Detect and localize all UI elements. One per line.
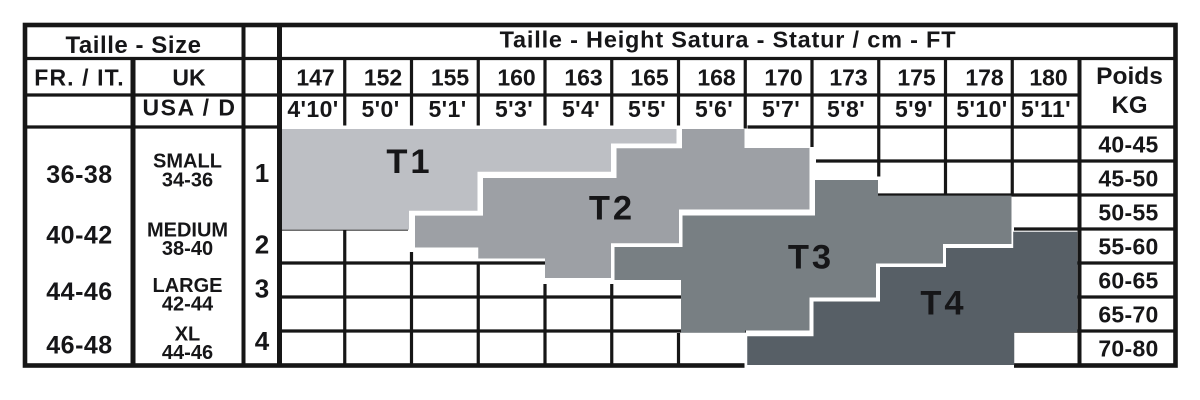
svg-text:42-44: 42-44	[162, 294, 214, 316]
svg-text:5'0': 5'0'	[361, 96, 399, 122]
svg-text:5'6': 5'6'	[695, 96, 733, 122]
svg-text:147: 147	[296, 65, 334, 91]
svg-text:40-45: 40-45	[1098, 132, 1158, 158]
svg-text:T1: T1	[386, 143, 432, 181]
svg-text:5'9': 5'9'	[895, 96, 933, 122]
svg-text:60-65: 60-65	[1098, 268, 1158, 294]
svg-text:T3: T3	[788, 239, 834, 277]
svg-text:4: 4	[255, 326, 270, 356]
svg-text:3: 3	[255, 274, 269, 304]
svg-text:38-40: 38-40	[162, 238, 213, 260]
svg-text:44-46: 44-46	[162, 342, 213, 364]
svg-text:Taille - Height Satura - Statu: Taille - Height Satura - Statur / cm - F…	[500, 27, 957, 53]
svg-text:5'5': 5'5'	[628, 96, 666, 122]
svg-text:155: 155	[431, 65, 470, 91]
svg-text:T2: T2	[589, 190, 635, 228]
svg-text:44-46: 44-46	[46, 278, 112, 306]
svg-text:165: 165	[630, 65, 669, 91]
svg-text:34-36: 34-36	[162, 170, 213, 192]
svg-text:5'3': 5'3'	[495, 96, 533, 122]
svg-text:173: 173	[829, 65, 867, 91]
svg-text:Poids: Poids	[1096, 63, 1163, 90]
svg-text:180: 180	[1029, 65, 1067, 91]
svg-text:163: 163	[564, 65, 602, 91]
svg-text:1: 1	[255, 158, 269, 188]
svg-text:5'7': 5'7'	[762, 96, 800, 122]
svg-text:65-70: 65-70	[1098, 302, 1158, 328]
svg-text:170: 170	[764, 65, 802, 91]
svg-text:5'1': 5'1'	[428, 96, 466, 122]
svg-text:T4: T4	[920, 285, 966, 323]
svg-text:5'4': 5'4'	[562, 96, 600, 122]
svg-text:4'10': 4'10'	[287, 96, 338, 122]
svg-text:5'11': 5'11'	[1021, 96, 1071, 122]
svg-text:36-38: 36-38	[46, 161, 112, 189]
svg-text:175: 175	[897, 65, 936, 91]
svg-text:40-42: 40-42	[46, 222, 112, 250]
svg-text:70-80: 70-80	[1098, 336, 1158, 362]
svg-text:FR. / IT.: FR. / IT.	[34, 65, 124, 91]
svg-text:46-48: 46-48	[46, 332, 112, 360]
svg-text:5'8': 5'8'	[827, 96, 865, 122]
svg-text:45-50: 45-50	[1098, 166, 1158, 192]
svg-text:55-60: 55-60	[1098, 234, 1158, 260]
svg-text:UK: UK	[172, 65, 206, 91]
svg-text:178: 178	[965, 65, 1004, 91]
svg-text:5'10': 5'10'	[956, 96, 1007, 122]
svg-text:KG: KG	[1112, 92, 1148, 119]
svg-text:168: 168	[697, 65, 736, 91]
svg-text:152: 152	[364, 65, 402, 91]
svg-text:2: 2	[255, 230, 269, 260]
svg-text:50-55: 50-55	[1098, 200, 1158, 226]
svg-text:USA / D: USA / D	[143, 95, 237, 121]
svg-text:160: 160	[497, 65, 535, 91]
svg-text:Taille - Size: Taille - Size	[65, 32, 201, 59]
